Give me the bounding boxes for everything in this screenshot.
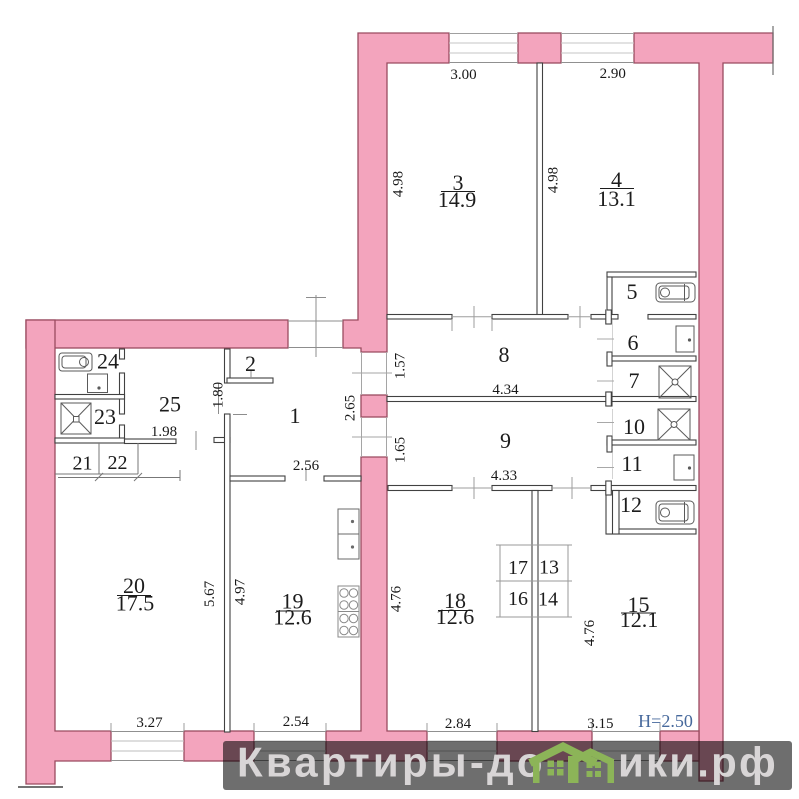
svg-text:4.76: 4.76	[389, 585, 405, 612]
svg-text:17: 17	[508, 557, 528, 579]
svg-text:4.33: 4.33	[491, 468, 517, 484]
svg-text:2.65: 2.65	[343, 395, 359, 421]
svg-text:5.67: 5.67	[202, 580, 218, 607]
svg-text:3.15: 3.15	[587, 716, 613, 732]
svg-text:3.00: 3.00	[450, 67, 476, 83]
svg-text:1: 1	[290, 403, 301, 428]
svg-text:14.9: 14.9	[438, 187, 477, 212]
svg-text:2.90: 2.90	[600, 66, 626, 82]
svg-text:9: 9	[500, 428, 511, 453]
svg-text:16: 16	[508, 588, 528, 610]
svg-text:1.65: 1.65	[393, 437, 409, 463]
svg-text:4.98: 4.98	[546, 167, 562, 193]
svg-text:7: 7	[629, 368, 640, 393]
svg-text:11: 11	[621, 451, 642, 476]
svg-text:5: 5	[627, 279, 638, 304]
svg-text:Н=2.50: Н=2.50	[638, 711, 693, 731]
svg-text:10: 10	[623, 414, 645, 439]
svg-text:4.76: 4.76	[582, 619, 598, 646]
svg-text:1.80: 1.80	[211, 382, 227, 408]
svg-text:22: 22	[108, 452, 128, 474]
svg-text:12.6: 12.6	[273, 605, 312, 630]
svg-text:14: 14	[538, 589, 558, 611]
svg-text:2: 2	[245, 351, 256, 376]
svg-text:2.56: 2.56	[293, 458, 320, 474]
svg-text:1.57: 1.57	[393, 352, 409, 379]
svg-text:13.1: 13.1	[597, 186, 636, 211]
svg-text:24: 24	[97, 349, 119, 374]
svg-text:3.27: 3.27	[136, 715, 163, 731]
svg-text:4.34: 4.34	[492, 382, 519, 398]
svg-text:12.6: 12.6	[436, 604, 475, 629]
svg-text:4.98: 4.98	[391, 171, 407, 197]
svg-text:2.84: 2.84	[445, 716, 472, 732]
svg-text:2.54: 2.54	[283, 714, 310, 730]
svg-text:1.98: 1.98	[151, 424, 177, 440]
svg-text:25: 25	[159, 392, 181, 417]
svg-text:Квартиры-до: Квартиры-до	[237, 739, 546, 786]
svg-text:8: 8	[499, 342, 510, 367]
svg-text:13: 13	[539, 557, 559, 579]
svg-text:12.1: 12.1	[620, 607, 659, 632]
svg-text:12: 12	[620, 492, 642, 517]
svg-text:6: 6	[628, 330, 639, 355]
svg-text:21: 21	[73, 453, 93, 475]
svg-text:23: 23	[94, 404, 116, 429]
svg-text:4.97: 4.97	[233, 578, 249, 605]
svg-text:17.5: 17.5	[116, 591, 155, 616]
svg-text:ики.рф: ики.рф	[618, 739, 778, 786]
